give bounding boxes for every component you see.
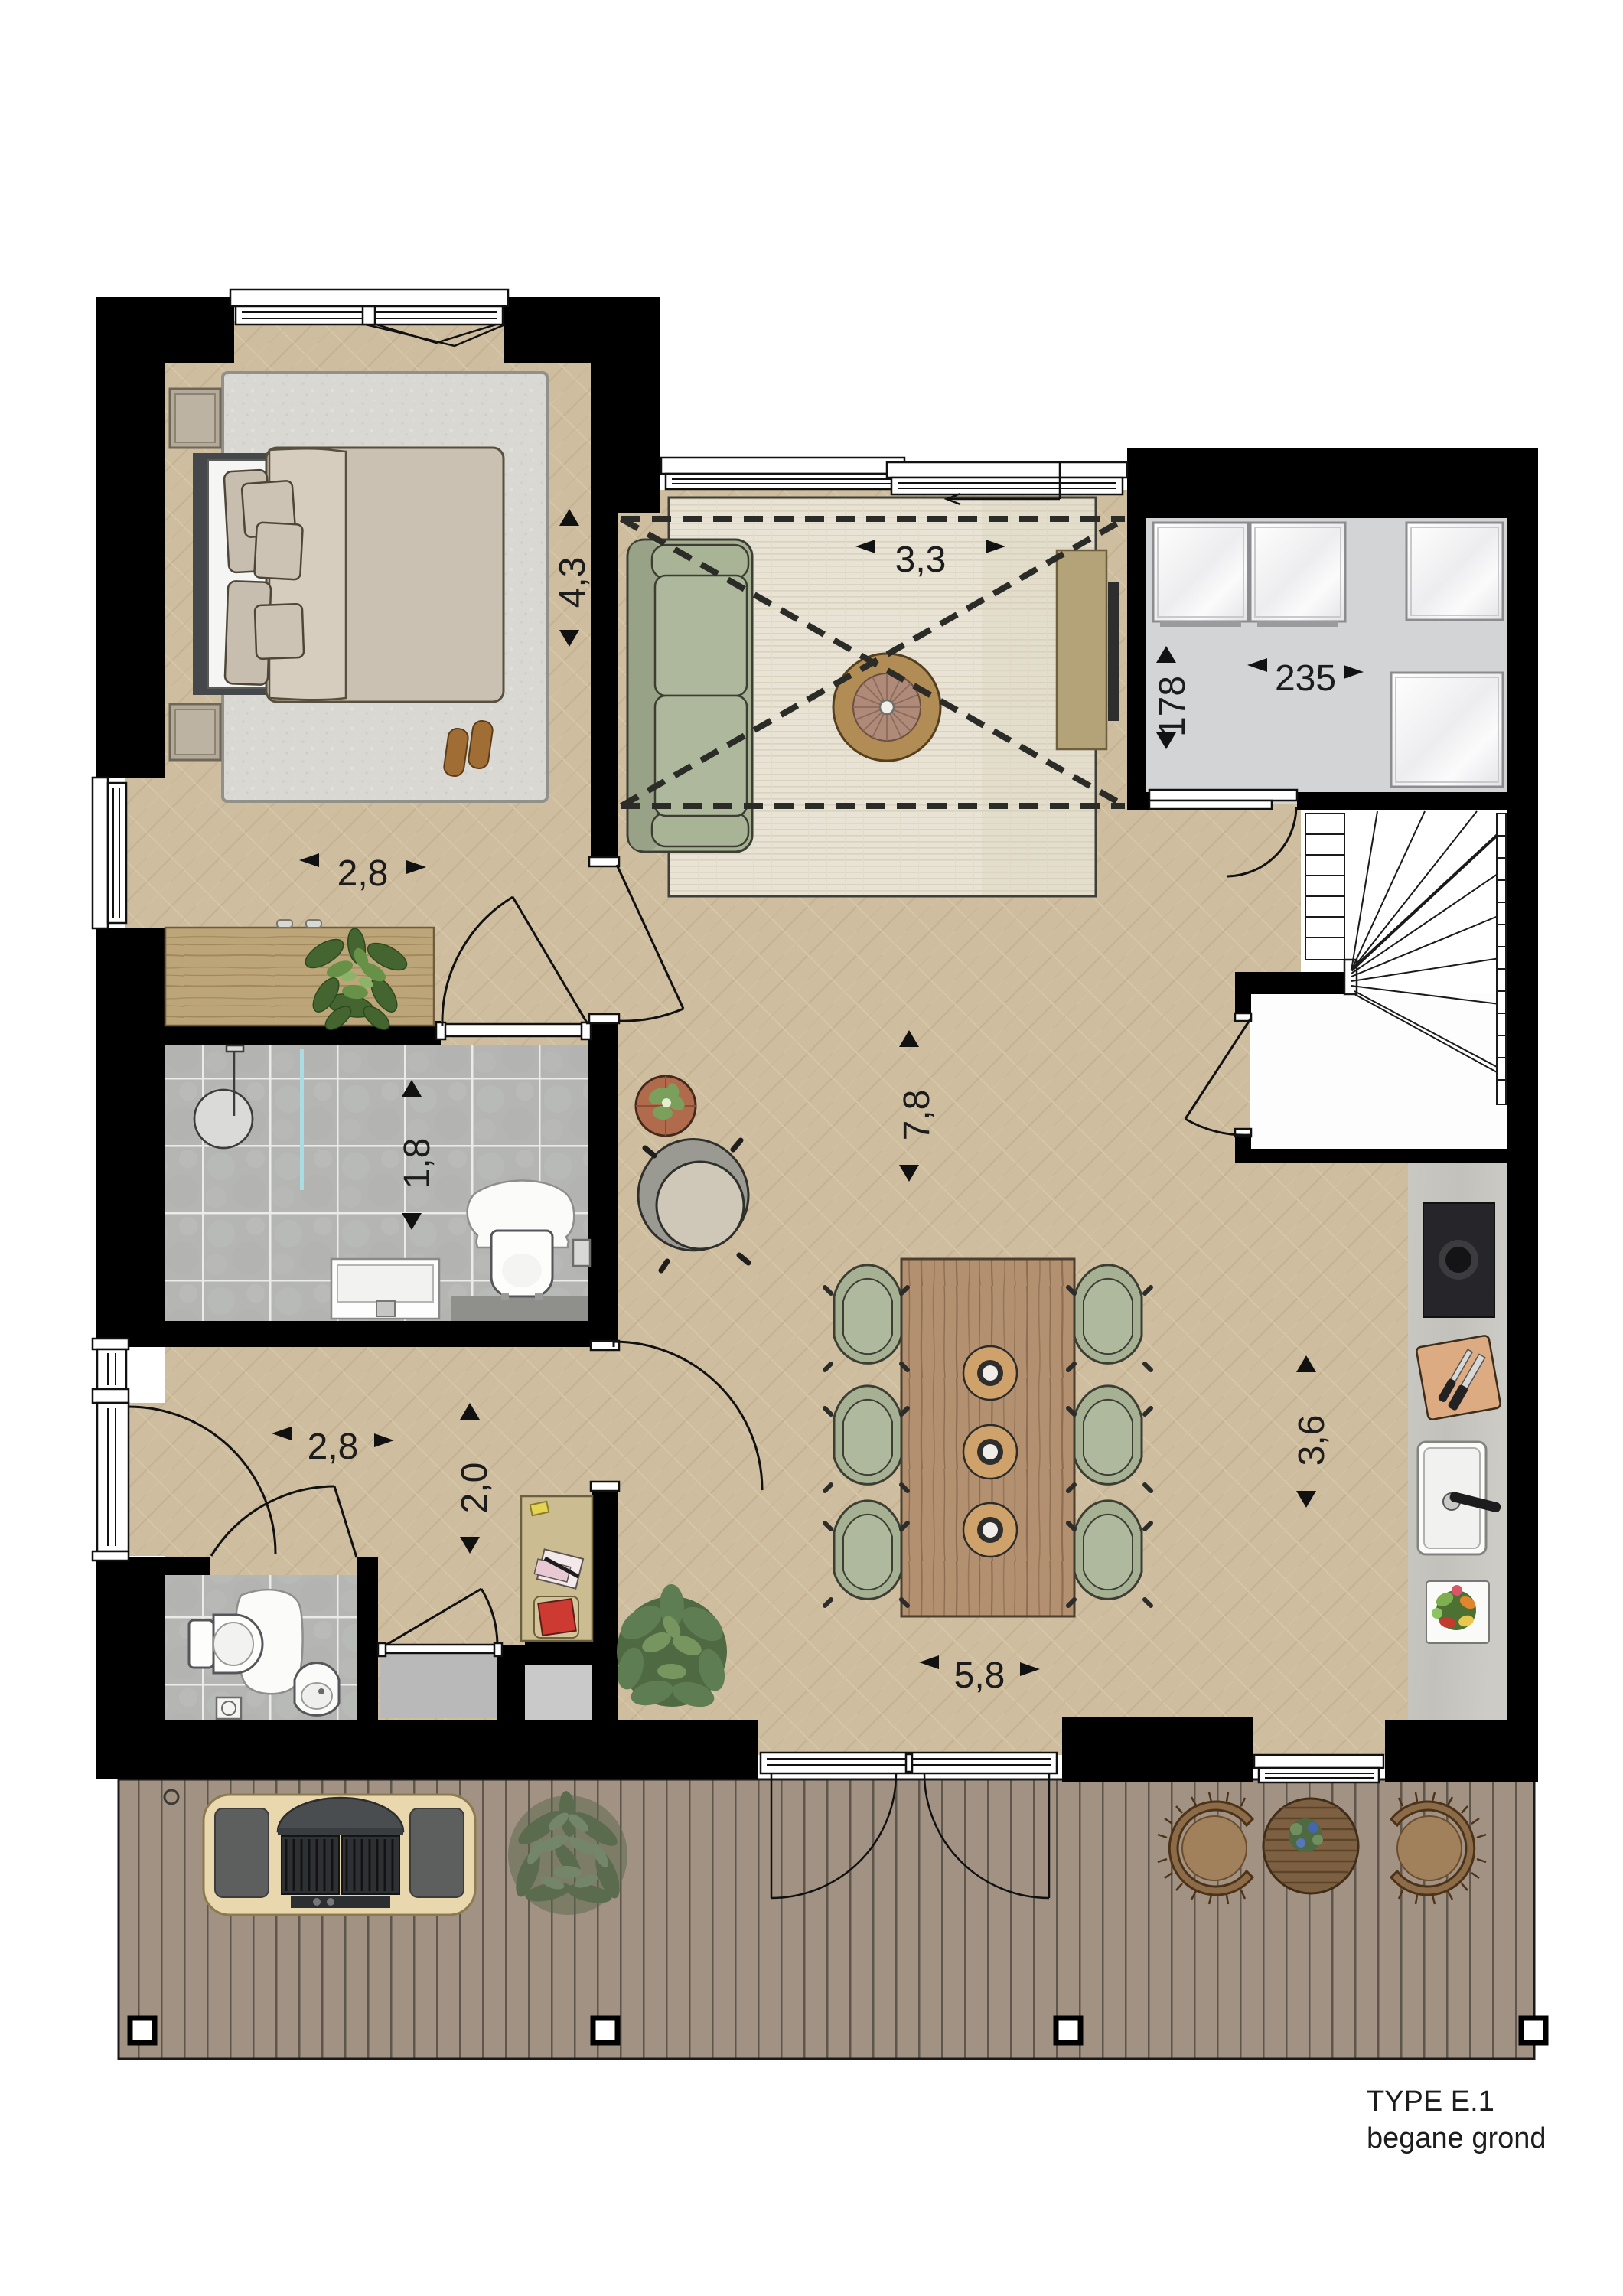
svg-text:2,8: 2,8 — [337, 853, 389, 894]
svg-text:begane grond: begane grond — [1367, 2122, 1546, 2154]
svg-text:3,6: 3,6 — [1292, 1415, 1332, 1466]
svg-text:5,8: 5,8 — [954, 1655, 1005, 1696]
svg-text:2,0: 2,0 — [455, 1463, 495, 1514]
svg-text:2,8: 2,8 — [308, 1427, 359, 1467]
svg-text:TYPE E.1: TYPE E.1 — [1367, 2086, 1494, 2118]
svg-text:1,8: 1,8 — [397, 1138, 438, 1189]
svg-text:235: 235 — [1275, 658, 1336, 699]
svg-text:3,3: 3,3 — [895, 540, 947, 580]
svg-text:4,3: 4,3 — [552, 557, 593, 608]
svg-text:7,8: 7,8 — [897, 1090, 937, 1141]
svg-text:178: 178 — [1152, 676, 1193, 737]
